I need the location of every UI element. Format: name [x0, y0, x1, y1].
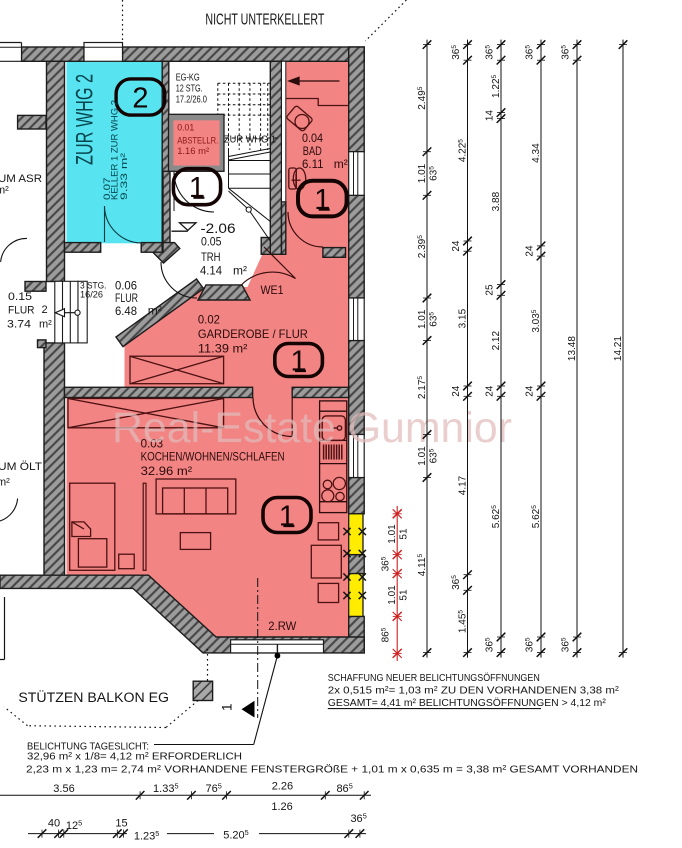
svg-text:11.39 m²: 11.39 m² — [198, 342, 248, 356]
svg-text:Real-Estate Gumnior: Real-Estate Gumnior — [112, 404, 512, 452]
svg-text:9.33 m²: 9.33 m² — [119, 153, 130, 200]
svg-text:17.2/26.0: 17.2/26.0 — [176, 94, 208, 105]
svg-text:STÜTZEN BALKON EG: STÜTZEN BALKON EG — [18, 690, 169, 705]
svg-text:24: 24 — [451, 385, 462, 397]
svg-text:2.12: 2.12 — [491, 331, 502, 351]
svg-text:m²: m² — [148, 304, 162, 318]
svg-text:14: 14 — [485, 110, 496, 122]
svg-text:40: 40 — [48, 818, 60, 830]
svg-text:FLUR: FLUR — [115, 291, 138, 305]
svg-text:1: 1 — [279, 500, 295, 532]
svg-text:16/26: 16/26 — [80, 290, 103, 301]
svg-text:4.14: 4.14 — [200, 264, 222, 278]
svg-text:2x 0,515 m²= 1,03 m² ZU DEN VO: 2x 0,515 m²= 1,03 m² ZU DEN VORHANDENEN … — [328, 685, 620, 697]
svg-text:m²: m² — [0, 477, 10, 489]
svg-text:32,96 m² x 1/8= 4,12 m² ERFORD: 32,96 m² x 1/8= 4,12 m² ERFORDERLICH — [27, 751, 242, 763]
svg-text:13.48: 13.48 — [567, 336, 578, 361]
svg-text:32.96 m²: 32.96 m² — [141, 464, 193, 478]
svg-text:1: 1 — [291, 345, 307, 377]
svg-text:2,23 m x 1,23 m= 2,74 m² VORHA: 2,23 m x 1,23 m= 2,74 m² VORHANDENE FENS… — [26, 764, 638, 776]
svg-text:6.48: 6.48 — [115, 304, 137, 318]
svg-text:GARDEROBE / FLUR: GARDEROBE / FLUR — [198, 327, 308, 341]
svg-text:2: 2 — [42, 304, 48, 316]
svg-text:14.21: 14.21 — [613, 336, 624, 361]
svg-text:0.15: 0.15 — [8, 291, 32, 303]
svg-text:ZUR WHG 2: ZUR WHG 2 — [72, 74, 99, 165]
svg-text:WE1: WE1 — [261, 283, 284, 297]
svg-text:TRH: TRH — [201, 250, 221, 264]
svg-text:51: 51 — [399, 589, 410, 601]
svg-text:UM ASR: UM ASR — [0, 173, 42, 185]
svg-text:6.11: 6.11 — [302, 157, 324, 171]
svg-text:m²: m² — [39, 319, 52, 331]
svg-text:0.01: 0.01 — [177, 122, 194, 133]
svg-text:2.RW: 2.RW — [268, 621, 296, 633]
svg-text:51: 51 — [399, 528, 410, 540]
svg-text:4.34: 4.34 — [531, 143, 542, 163]
svg-text:3.74: 3.74 — [7, 319, 31, 331]
svg-text:1.01: 1.01 — [387, 524, 398, 544]
svg-text:1: 1 — [220, 704, 235, 712]
svg-text:3.15: 3.15 — [457, 308, 468, 328]
svg-text:m²: m² — [334, 157, 348, 171]
svg-text:FLUR: FLUR — [8, 305, 35, 317]
svg-text:0.02: 0.02 — [198, 312, 220, 326]
svg-text:2.26: 2.26 — [272, 781, 293, 793]
svg-text:12 STG.: 12 STG. — [176, 84, 203, 95]
svg-text:1.01: 1.01 — [387, 585, 398, 605]
svg-text:NICHT UNTERKELLERT: NICHT UNTERKELLERT — [205, 12, 324, 29]
svg-text:EG-KG: EG-KG — [176, 72, 200, 83]
svg-text:m²: m² — [0, 185, 9, 197]
svg-text:1.01: 1.01 — [417, 446, 428, 466]
svg-text:0.05: 0.05 — [201, 235, 222, 249]
svg-text:3.56: 3.56 — [53, 783, 74, 795]
svg-text:24: 24 — [525, 245, 536, 257]
svg-text:0.04: 0.04 — [302, 131, 323, 145]
svg-text:25: 25 — [485, 284, 496, 296]
svg-text:24: 24 — [525, 385, 536, 397]
svg-text:1: 1 — [314, 184, 330, 216]
svg-text:1: 1 — [189, 172, 205, 204]
svg-text:24: 24 — [451, 240, 462, 252]
svg-text:1.01: 1.01 — [417, 163, 428, 183]
svg-text:4.17: 4.17 — [457, 475, 468, 495]
svg-text:ZUR WHG 1: ZUR WHG 1 — [224, 134, 276, 146]
svg-text:BAD: BAD — [303, 144, 322, 158]
svg-text:1.01: 1.01 — [417, 309, 428, 329]
svg-text:3.88: 3.88 — [491, 191, 502, 211]
svg-text:2: 2 — [132, 82, 148, 114]
svg-text:GESAMT= 4,41 m² BELICHTUNGSÖFF: GESAMT= 4,41 m² BELICHTUNGSÖFFNUNGEN > 4… — [328, 697, 606, 709]
svg-text:15: 15 — [115, 818, 127, 830]
svg-text:24: 24 — [485, 385, 496, 397]
svg-text:m²: m² — [233, 264, 247, 278]
svg-text:SCHAFFUNG NEUER BELICHTUNGSÖFF: SCHAFFUNG NEUER BELICHTUNGSÖFFNUNGEN — [328, 672, 540, 684]
svg-text:1.26: 1.26 — [271, 801, 292, 813]
svg-text:UM ÖLT: UM ÖLT — [0, 461, 42, 473]
svg-text:1.16 m²: 1.16 m² — [177, 146, 209, 157]
